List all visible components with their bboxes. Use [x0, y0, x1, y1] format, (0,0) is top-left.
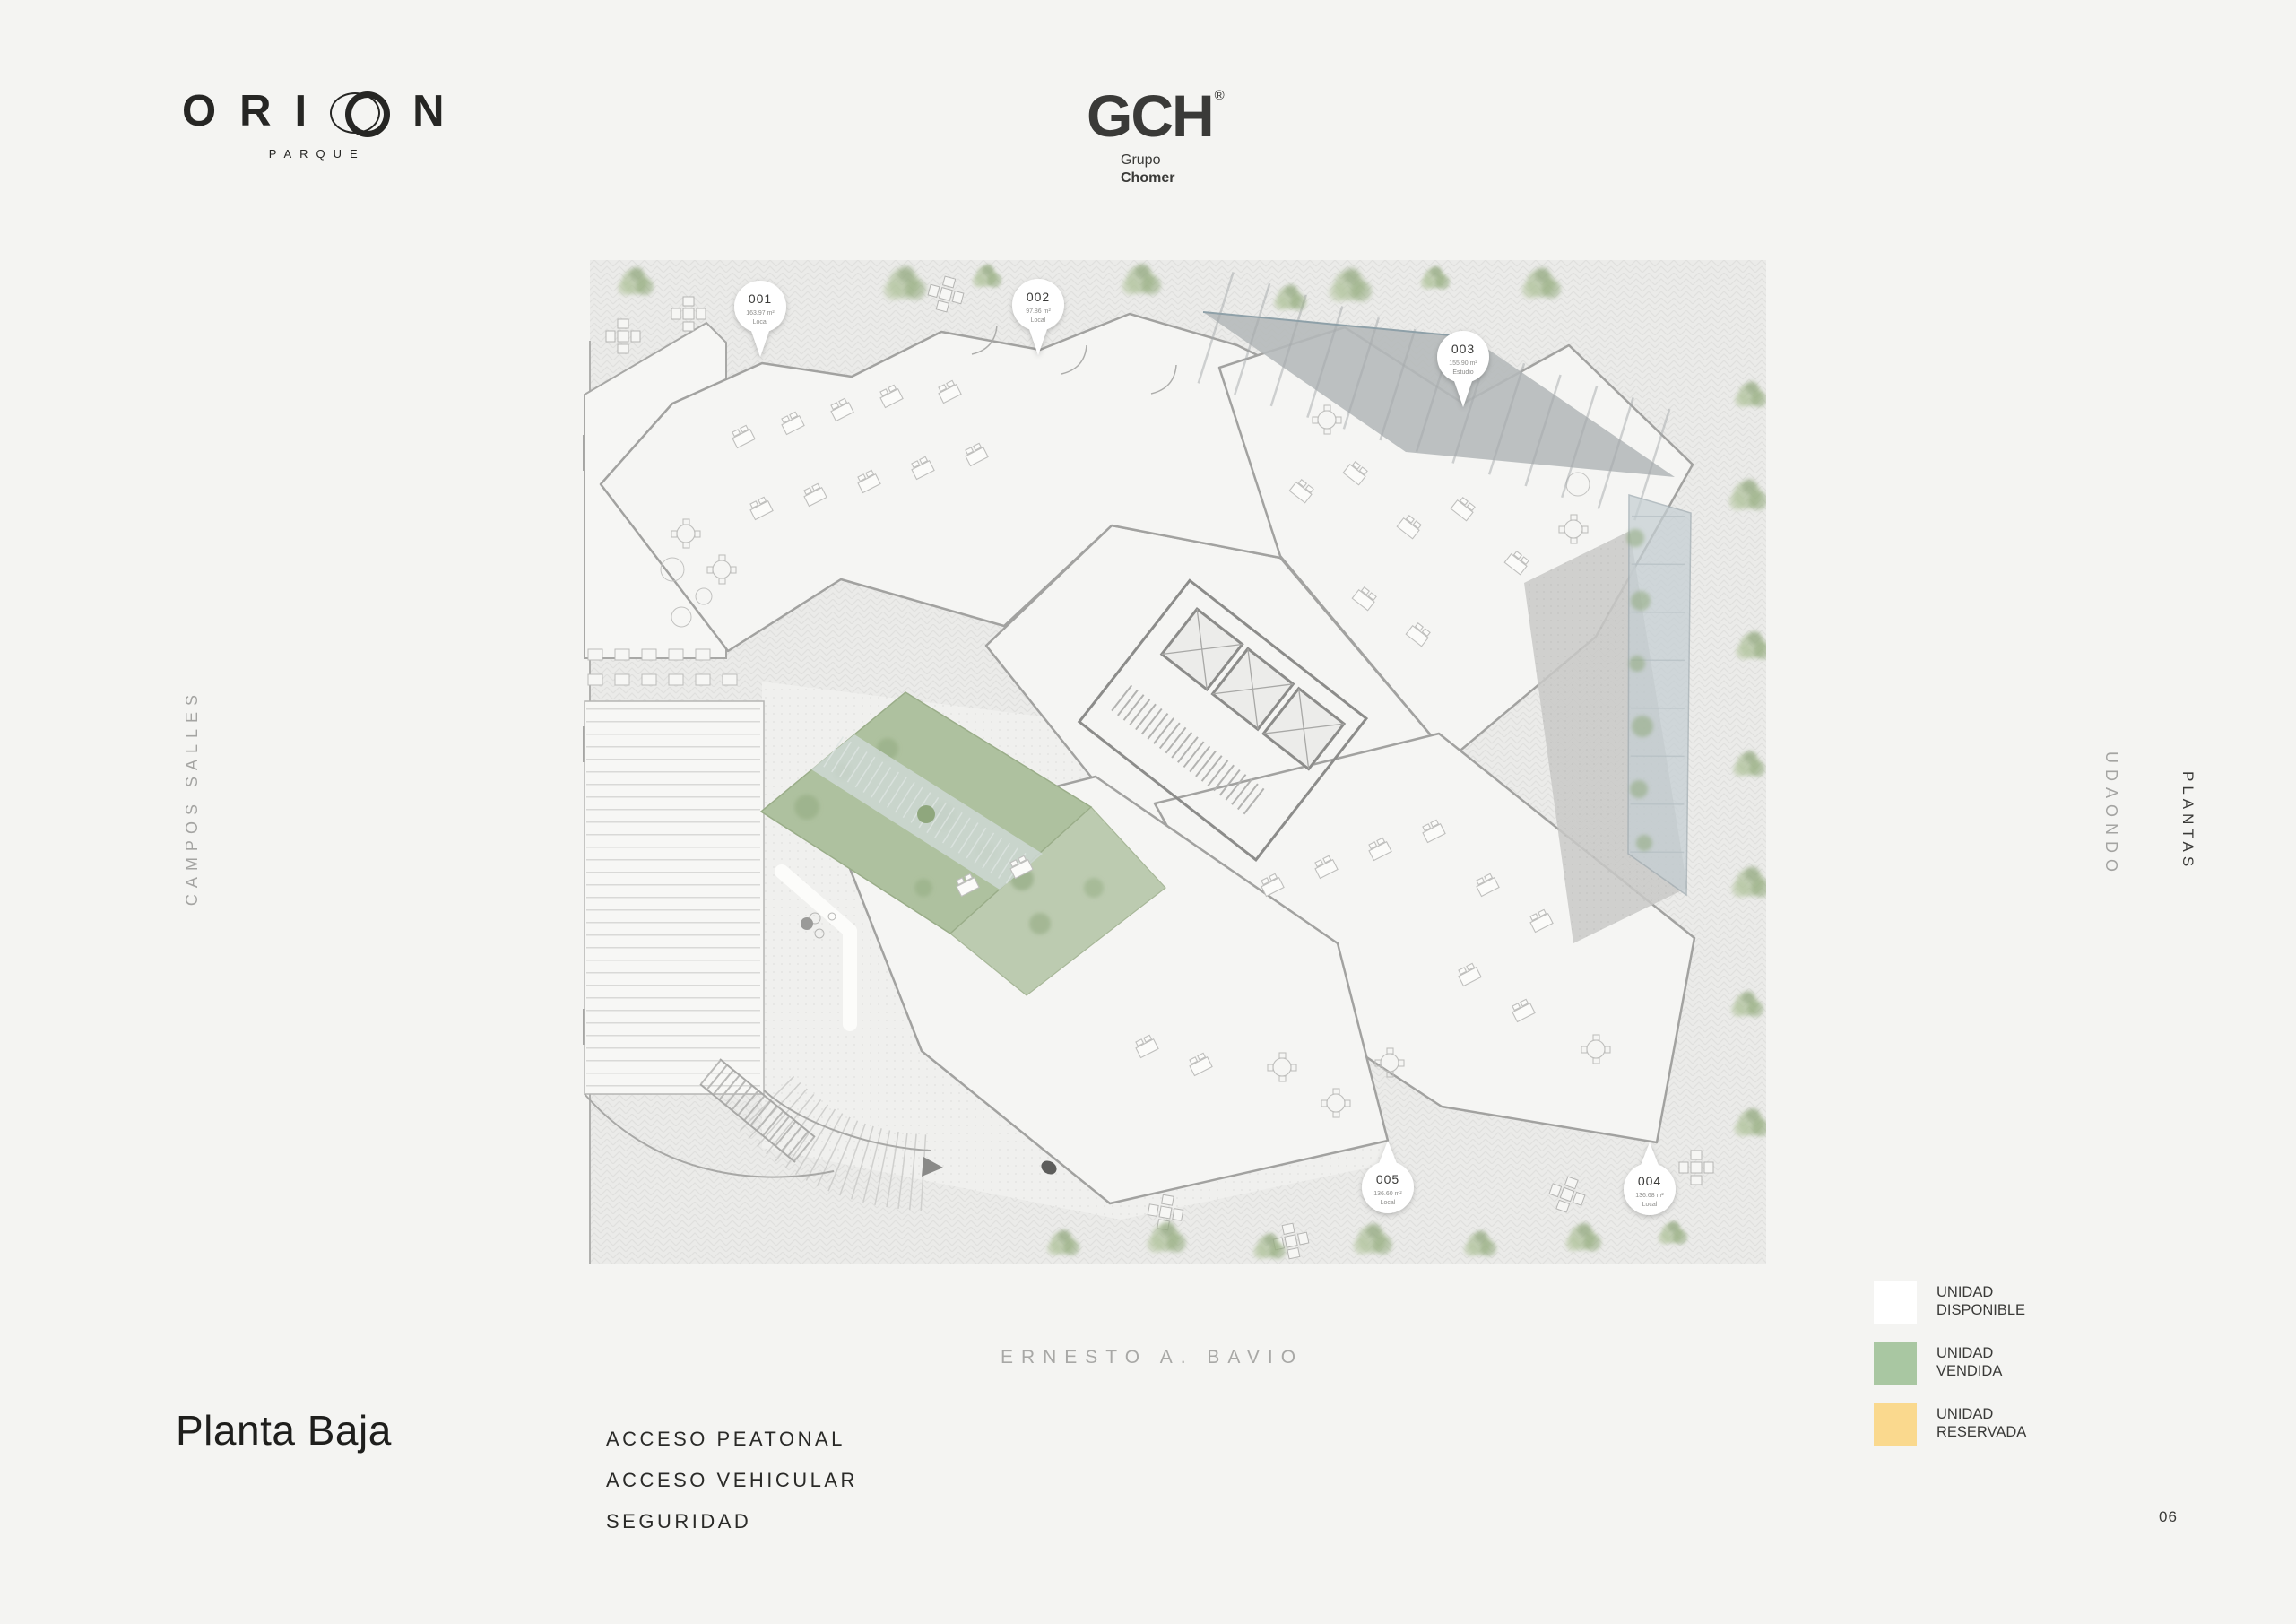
- right-glass-wall: [1626, 495, 1691, 895]
- svg-text:003: 003: [1451, 342, 1475, 356]
- svg-text:136.68 m²: 136.68 m²: [1635, 1193, 1664, 1199]
- street-label-campos-salles: CAMPOS SALLES: [183, 689, 202, 906]
- access-item-vehicular: ACCESO VEHICULAR: [606, 1460, 858, 1501]
- svg-text:Local: Local: [1642, 1202, 1658, 1208]
- gch-subtitle-line1: Grupo: [1121, 152, 1225, 169]
- svg-text:163.97 m²: 163.97 m²: [746, 310, 775, 317]
- legend-swatch-reservada: [1874, 1403, 1917, 1446]
- access-item-peatonal: ACCESO PEATONAL: [606, 1419, 858, 1460]
- svg-text:97.86 m²: 97.86 m²: [1026, 308, 1051, 315]
- gch-subtitle: Grupo Chomer: [1121, 152, 1225, 187]
- legend-label-disponible: UNIDADDISPONIBLE: [1936, 1281, 2025, 1319]
- legend-swatch-vendida: [1874, 1342, 1917, 1385]
- orion-wordmark: ORI N: [182, 90, 445, 134]
- legend-row-disponible: UNIDADDISPONIBLE: [1874, 1281, 2026, 1324]
- svg-text:155.90 m²: 155.90 m²: [1449, 360, 1477, 367]
- access-list: ACCESO PEATONAL ACCESO VEHICULAR SEGURID…: [606, 1419, 858, 1542]
- svg-text:004: 004: [1638, 1174, 1661, 1188]
- legend-row-vendida: UNIDADVENDIDA: [1874, 1342, 2026, 1385]
- svg-text:136.60 m²: 136.60 m²: [1373, 1191, 1402, 1197]
- legend-swatch-disponible: [1874, 1281, 1917, 1324]
- legend-row-reservada: UNIDADRESERVADA: [1874, 1403, 2026, 1446]
- street-label-ernesto-bavio: ERNESTO A. BAVIO: [538, 1347, 1766, 1368]
- svg-text:001: 001: [749, 291, 772, 306]
- floor-plan: 001 163.97 m² Local 002 97.86 m² Local 0…: [538, 260, 1766, 1264]
- access-item-seguridad: SEGURIDAD: [606, 1501, 858, 1542]
- page-number: 06: [2159, 1508, 2178, 1526]
- orion-subtitle: PARQUE: [261, 147, 366, 161]
- gch-logo: GCH ® Grupo Chomer: [1087, 86, 1225, 187]
- section-label-plantas: PLANTAS: [2179, 771, 2196, 871]
- orion-letters-pre: ORI: [182, 90, 330, 134]
- orion-double-o-icon: [330, 91, 389, 134]
- legend: UNIDADDISPONIBLE UNIDADVENDIDA UNIDADRES…: [1874, 1281, 2026, 1463]
- street-label-udaondo: UDAONDO: [2101, 751, 2120, 878]
- svg-text:002: 002: [1027, 290, 1050, 304]
- svg-text:Local: Local: [1381, 1200, 1396, 1206]
- page-title: Planta Baja: [176, 1406, 392, 1455]
- legend-label-reservada: UNIDADRESERVADA: [1936, 1403, 2026, 1441]
- svg-text:Local: Local: [1031, 317, 1046, 324]
- svg-text:Estudio: Estudio: [1452, 369, 1473, 376]
- gch-wordmark: GCH: [1087, 86, 1213, 145]
- orion-letters-post: N: [412, 90, 444, 134]
- legend-label-vendida: UNIDADVENDIDA: [1936, 1342, 2002, 1380]
- orion-logo: ORI N PARQUE: [182, 90, 445, 161]
- svg-text:005: 005: [1376, 1172, 1399, 1186]
- svg-text:Local: Local: [753, 319, 768, 326]
- gch-subtitle-line2: Chomer: [1121, 169, 1225, 187]
- registered-mark: ®: [1215, 88, 1225, 103]
